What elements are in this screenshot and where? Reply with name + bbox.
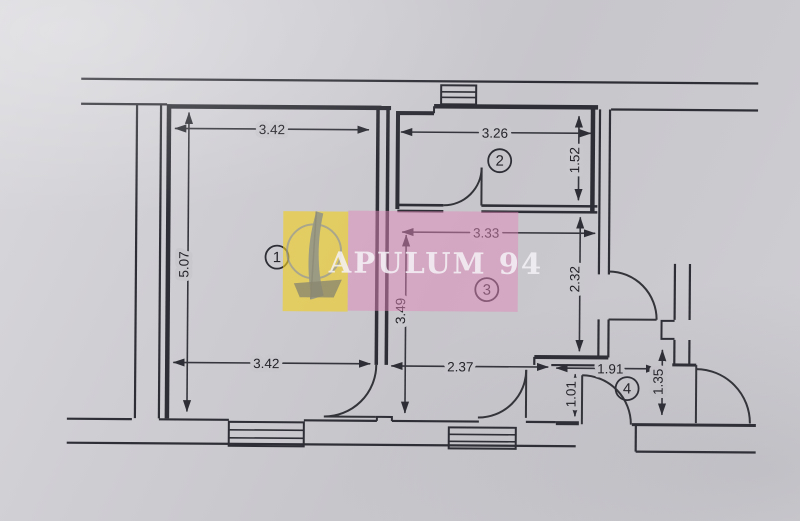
- room-number-4: 4: [623, 381, 631, 398]
- dim-label-room4-top: 1.91: [597, 361, 623, 376]
- dim-label-room1-bottom: 3.42: [253, 356, 279, 371]
- room-number-1: 1: [273, 249, 281, 266]
- dim-label-corridor: 1.01: [563, 381, 578, 407]
- window-symbol-left: [229, 422, 304, 447]
- dim-label-room3-bottom: 2.37: [447, 359, 473, 374]
- dim-label-room2-top: 3.26: [482, 126, 508, 141]
- dim-label-room3-right: 2.32: [567, 266, 582, 292]
- door-room2: [443, 167, 481, 205]
- door-room4-right: [696, 365, 750, 423]
- dim-label-room4-right: 1.35: [651, 369, 666, 395]
- room-badge-2: 2: [488, 149, 511, 172]
- dim-label-room1-left: 5.07: [176, 251, 191, 277]
- watermark: APULUM 94: [283, 210, 544, 313]
- flue-symbol: [441, 85, 476, 104]
- floor-plan-drawing: 3.42 5.07 3.42 3.26 1.52 3.33 3.49 2.32 …: [0, 0, 800, 521]
- door-room3-room4: [609, 271, 657, 319]
- dim-label-room1-top: 3.42: [259, 122, 285, 137]
- watermark-text: APULUM 94: [328, 245, 543, 281]
- scanned-floor-plan: 3.42 5.07 3.42 3.26 1.52 3.33 3.49 2.32 …: [0, 0, 800, 521]
- room-badge-4: 4: [616, 377, 639, 400]
- door-room3-balcony: [478, 370, 526, 418]
- room-number-2: 2: [495, 153, 503, 170]
- door-room1-room3: [324, 364, 376, 416]
- dim-label-room2-right: 1.52: [567, 147, 582, 173]
